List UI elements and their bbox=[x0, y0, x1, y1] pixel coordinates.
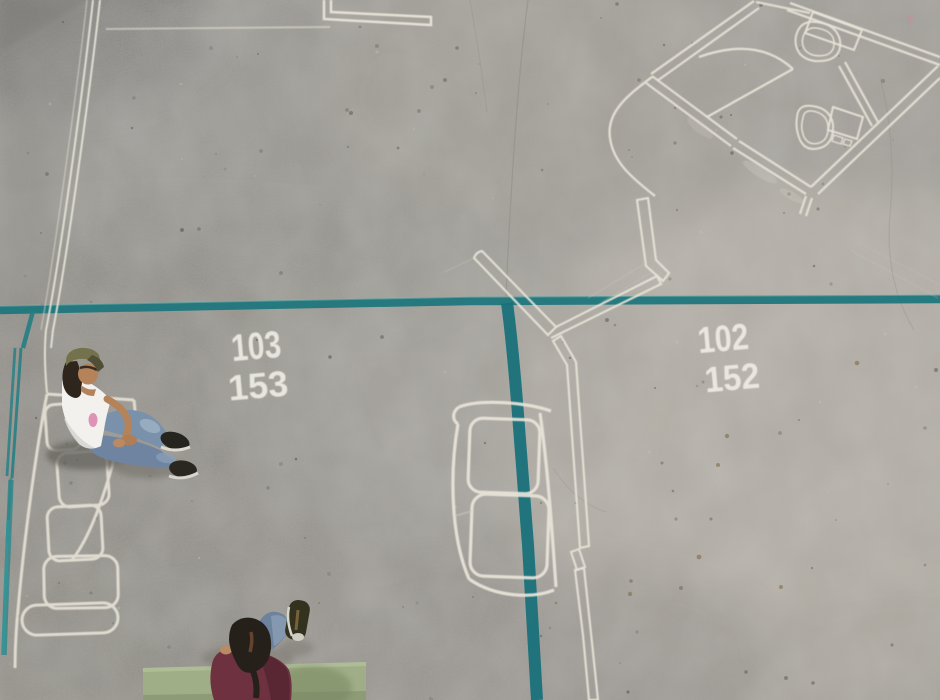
svg-text:102: 102 bbox=[696, 316, 750, 361]
svg-text:153: 153 bbox=[226, 362, 289, 408]
svg-text:152: 152 bbox=[703, 355, 761, 401]
